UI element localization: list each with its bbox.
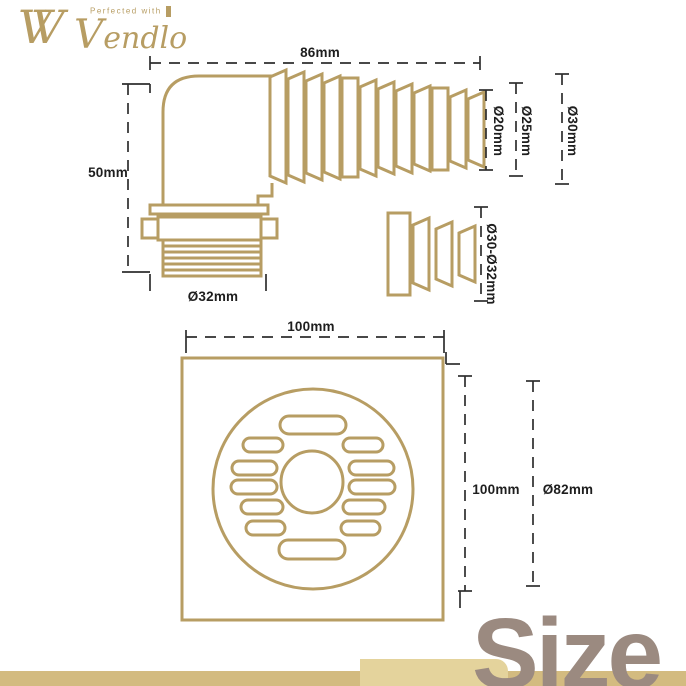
elbow-width-label: 86mm [300, 45, 340, 60]
adapter-drawing [388, 213, 475, 295]
hose-end-diameter-dimensions: Ø20mm Ø25mm Ø30mm [479, 74, 580, 184]
elbow-height-dimension: 50mm [88, 84, 150, 272]
thread-diameter-dimension: Ø32mm [150, 274, 266, 304]
elbow-fitting-drawing [142, 70, 484, 276]
elbow-width-dimension: 86mm [150, 45, 480, 70]
thread-diameter-label: Ø32mm [188, 289, 239, 304]
hose-end-large-label: Ø30mm [565, 106, 580, 157]
drain-width-label: 100mm [287, 319, 335, 334]
product-size-diagram: VV Perfected with Vendlo [0, 0, 686, 686]
adapter-range-label: Ø30-Ø32mm [484, 223, 499, 304]
hose-end-mid-label: Ø25mm [519, 106, 534, 157]
floor-drain-drawing [182, 358, 443, 620]
hose-end-small-label: Ø20mm [491, 106, 506, 157]
thread-section [163, 240, 261, 276]
grate-slots-right [341, 438, 395, 535]
drain-height-dimension: 100mm [446, 352, 520, 608]
dimension-drawing: 86mm 50mm Ø32mm Ø20mm Ø25mm [0, 0, 686, 686]
drain-height-label: 100mm [472, 482, 520, 497]
size-watermark: Size [472, 604, 660, 686]
elbow-height-label: 50mm [88, 165, 128, 180]
grate-circle-label: Ø82mm [543, 482, 594, 497]
adapter-dimension: Ø30-Ø32mm [474, 207, 499, 305]
drain-width-dimension: 100mm [186, 319, 444, 353]
hose-barb-fins [270, 70, 484, 183]
grate-slots-left [231, 438, 285, 535]
grate-circle-dimension: Ø82mm [526, 381, 593, 586]
